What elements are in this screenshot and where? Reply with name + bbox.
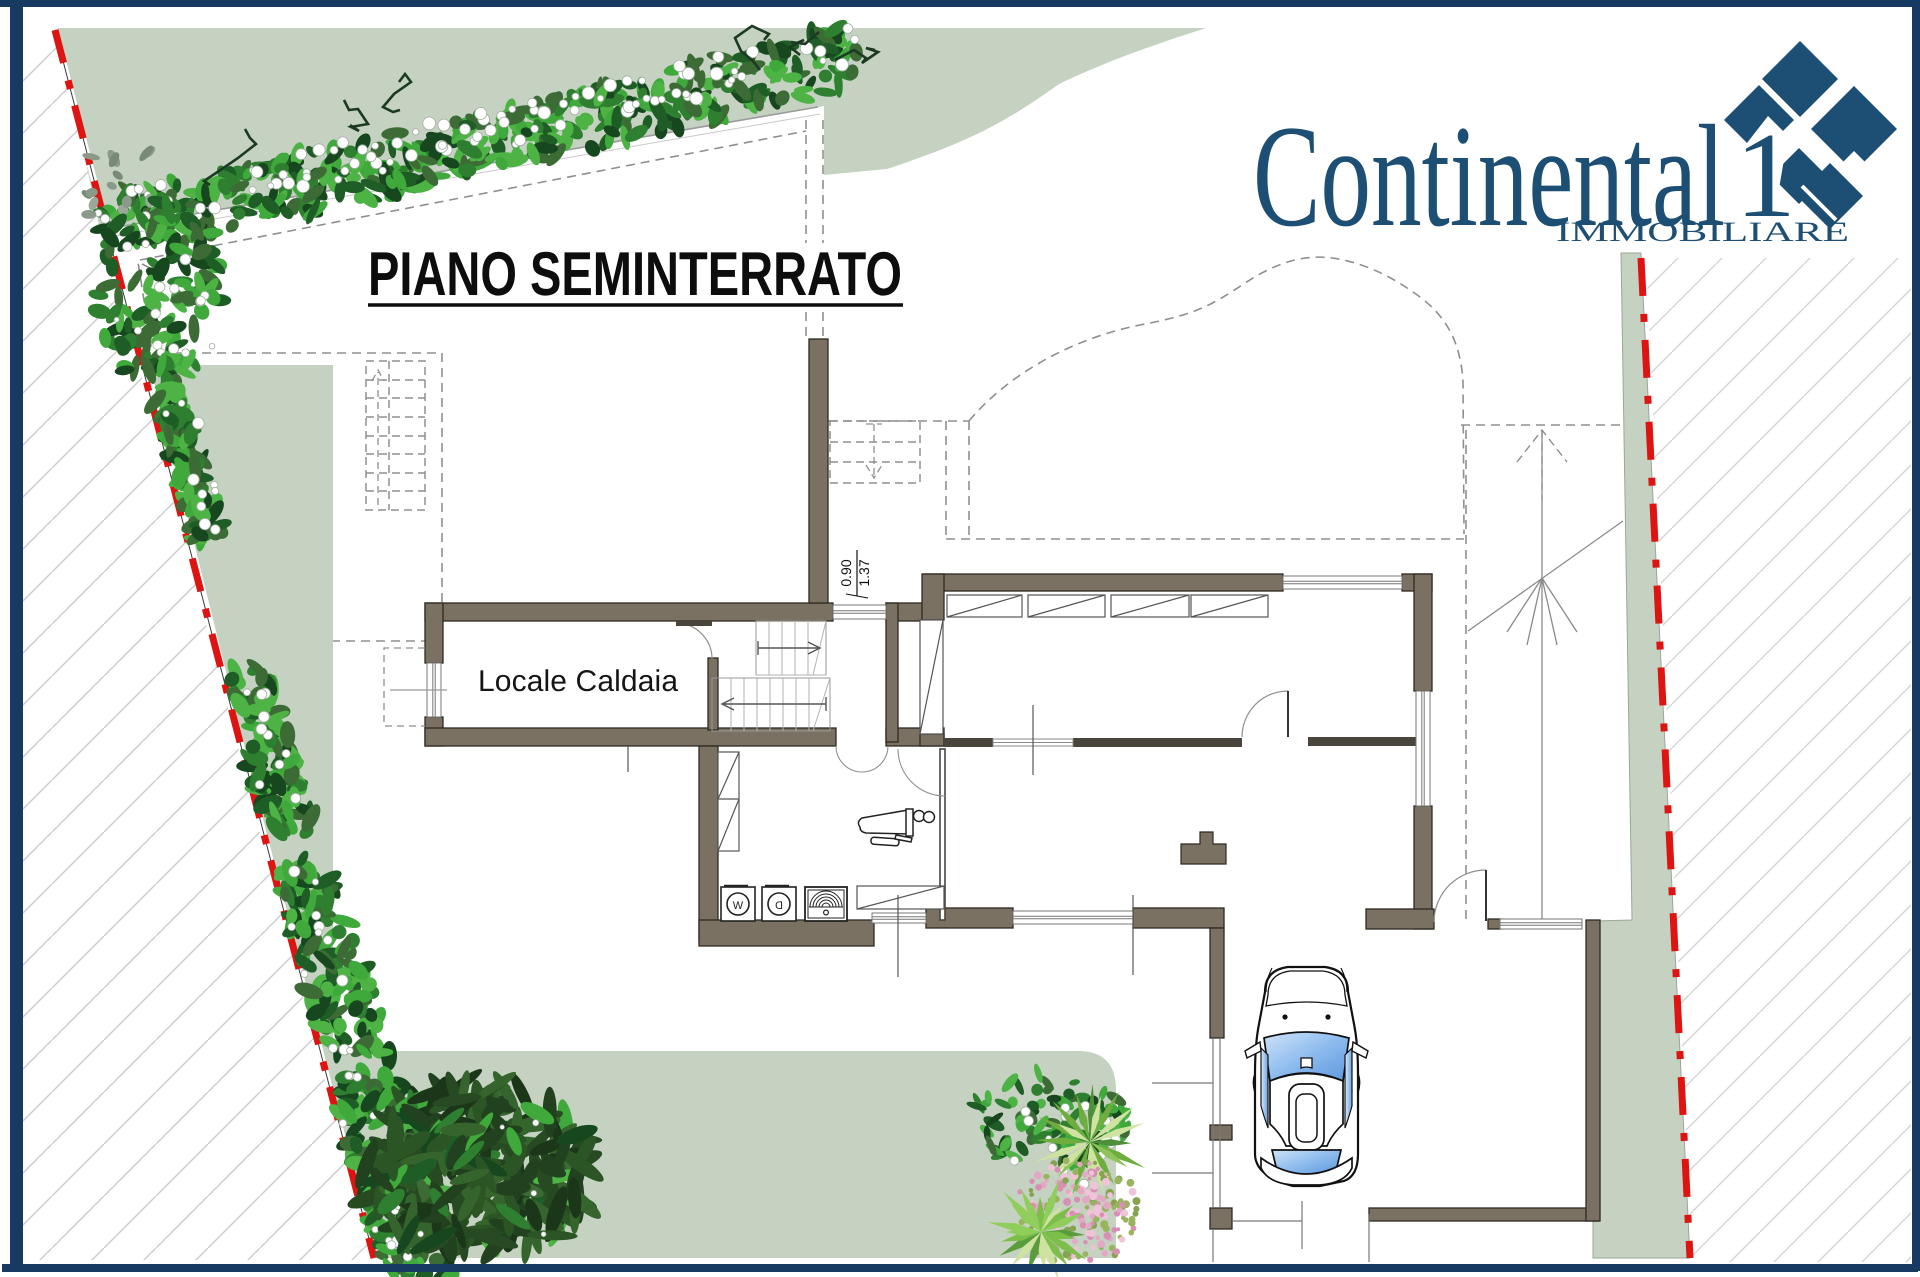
svg-text:D: D <box>775 900 783 912</box>
svg-text:Locale Caldaia: Locale Caldaia <box>478 665 678 698</box>
svg-text:W: W <box>733 900 744 912</box>
svg-text:1.37: 1.37 <box>856 559 872 586</box>
svg-text:0.90: 0.90 <box>838 559 854 586</box>
svg-text:PIANO SEMINTERRATO: PIANO SEMINTERRATO <box>368 240 902 309</box>
svg-text:IMMOBILIARE: IMMOBILIARE <box>1556 217 1849 248</box>
svg-text:1: 1 <box>1735 108 1796 243</box>
